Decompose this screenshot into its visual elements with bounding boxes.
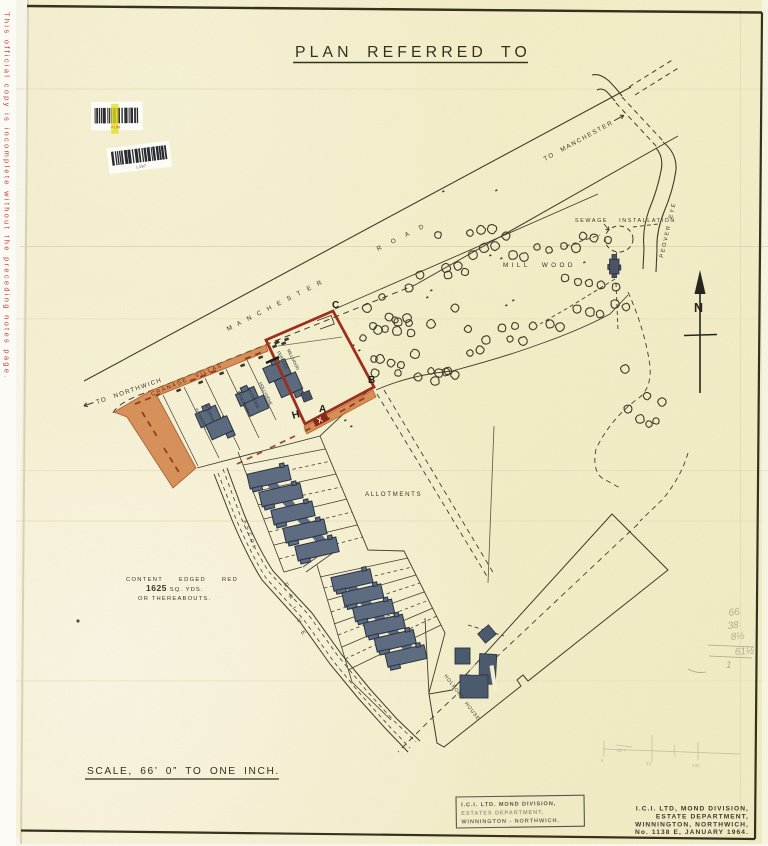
svg-text:38: 38 xyxy=(727,620,740,632)
svg-text:MILL WOOD: MILL WOOD xyxy=(503,262,576,269)
svg-text:1: 1 xyxy=(726,660,732,671)
svg-text:C: C xyxy=(332,300,339,311)
svg-text:PL99: PL99 xyxy=(111,125,120,129)
svg-text:OR THEREABOUTS.: OR THEREABOUTS. xyxy=(138,596,211,602)
svg-text:43: 43 xyxy=(646,761,652,766)
svg-text:ESTATE DEPARTMENT,: ESTATE DEPARTMENT, xyxy=(656,814,749,821)
svg-text:61½: 61½ xyxy=(734,646,755,658)
svg-text:WINNINGTON, NORTHWICH,: WINNINGTON, NORTHWICH, xyxy=(635,822,749,829)
svg-text:I.C.I. LTD, MOND DIVISION,: I.C.I. LTD, MOND DIVISION, xyxy=(636,806,749,813)
svg-text:ALLOTMENTS: ALLOTMENTS xyxy=(365,491,422,498)
svg-text:PLAN REFERRED TO: PLAN REFERRED TO xyxy=(295,44,531,61)
svg-text:This official copy is incomple: This official copy is incomplete without… xyxy=(3,12,12,380)
svg-text:SCALE, 66’ 0” TO ONE INCH.: SCALE, 66’ 0” TO ONE INCH. xyxy=(87,766,280,777)
svg-text:66: 66 xyxy=(728,606,741,619)
svg-text:N: N xyxy=(694,301,703,315)
svg-text:SEWAGE INSTALLATION: SEWAGE INSTALLATION xyxy=(575,218,676,224)
svg-text:66·+: 66·+ xyxy=(617,748,627,753)
svg-text:B: B xyxy=(368,375,375,386)
svg-text:CONTENT EDGED RED: CONTENT EDGED RED xyxy=(126,577,238,583)
svg-text:ESTATES DEPARTMENT,: ESTATES DEPARTMENT, xyxy=(461,810,544,817)
svg-text:8½: 8½ xyxy=(730,631,746,643)
svg-text:132: 132 xyxy=(692,763,700,768)
svg-text:No. 1138 E, JANUARY 1964.: No. 1138 E, JANUARY 1964. xyxy=(635,829,749,836)
